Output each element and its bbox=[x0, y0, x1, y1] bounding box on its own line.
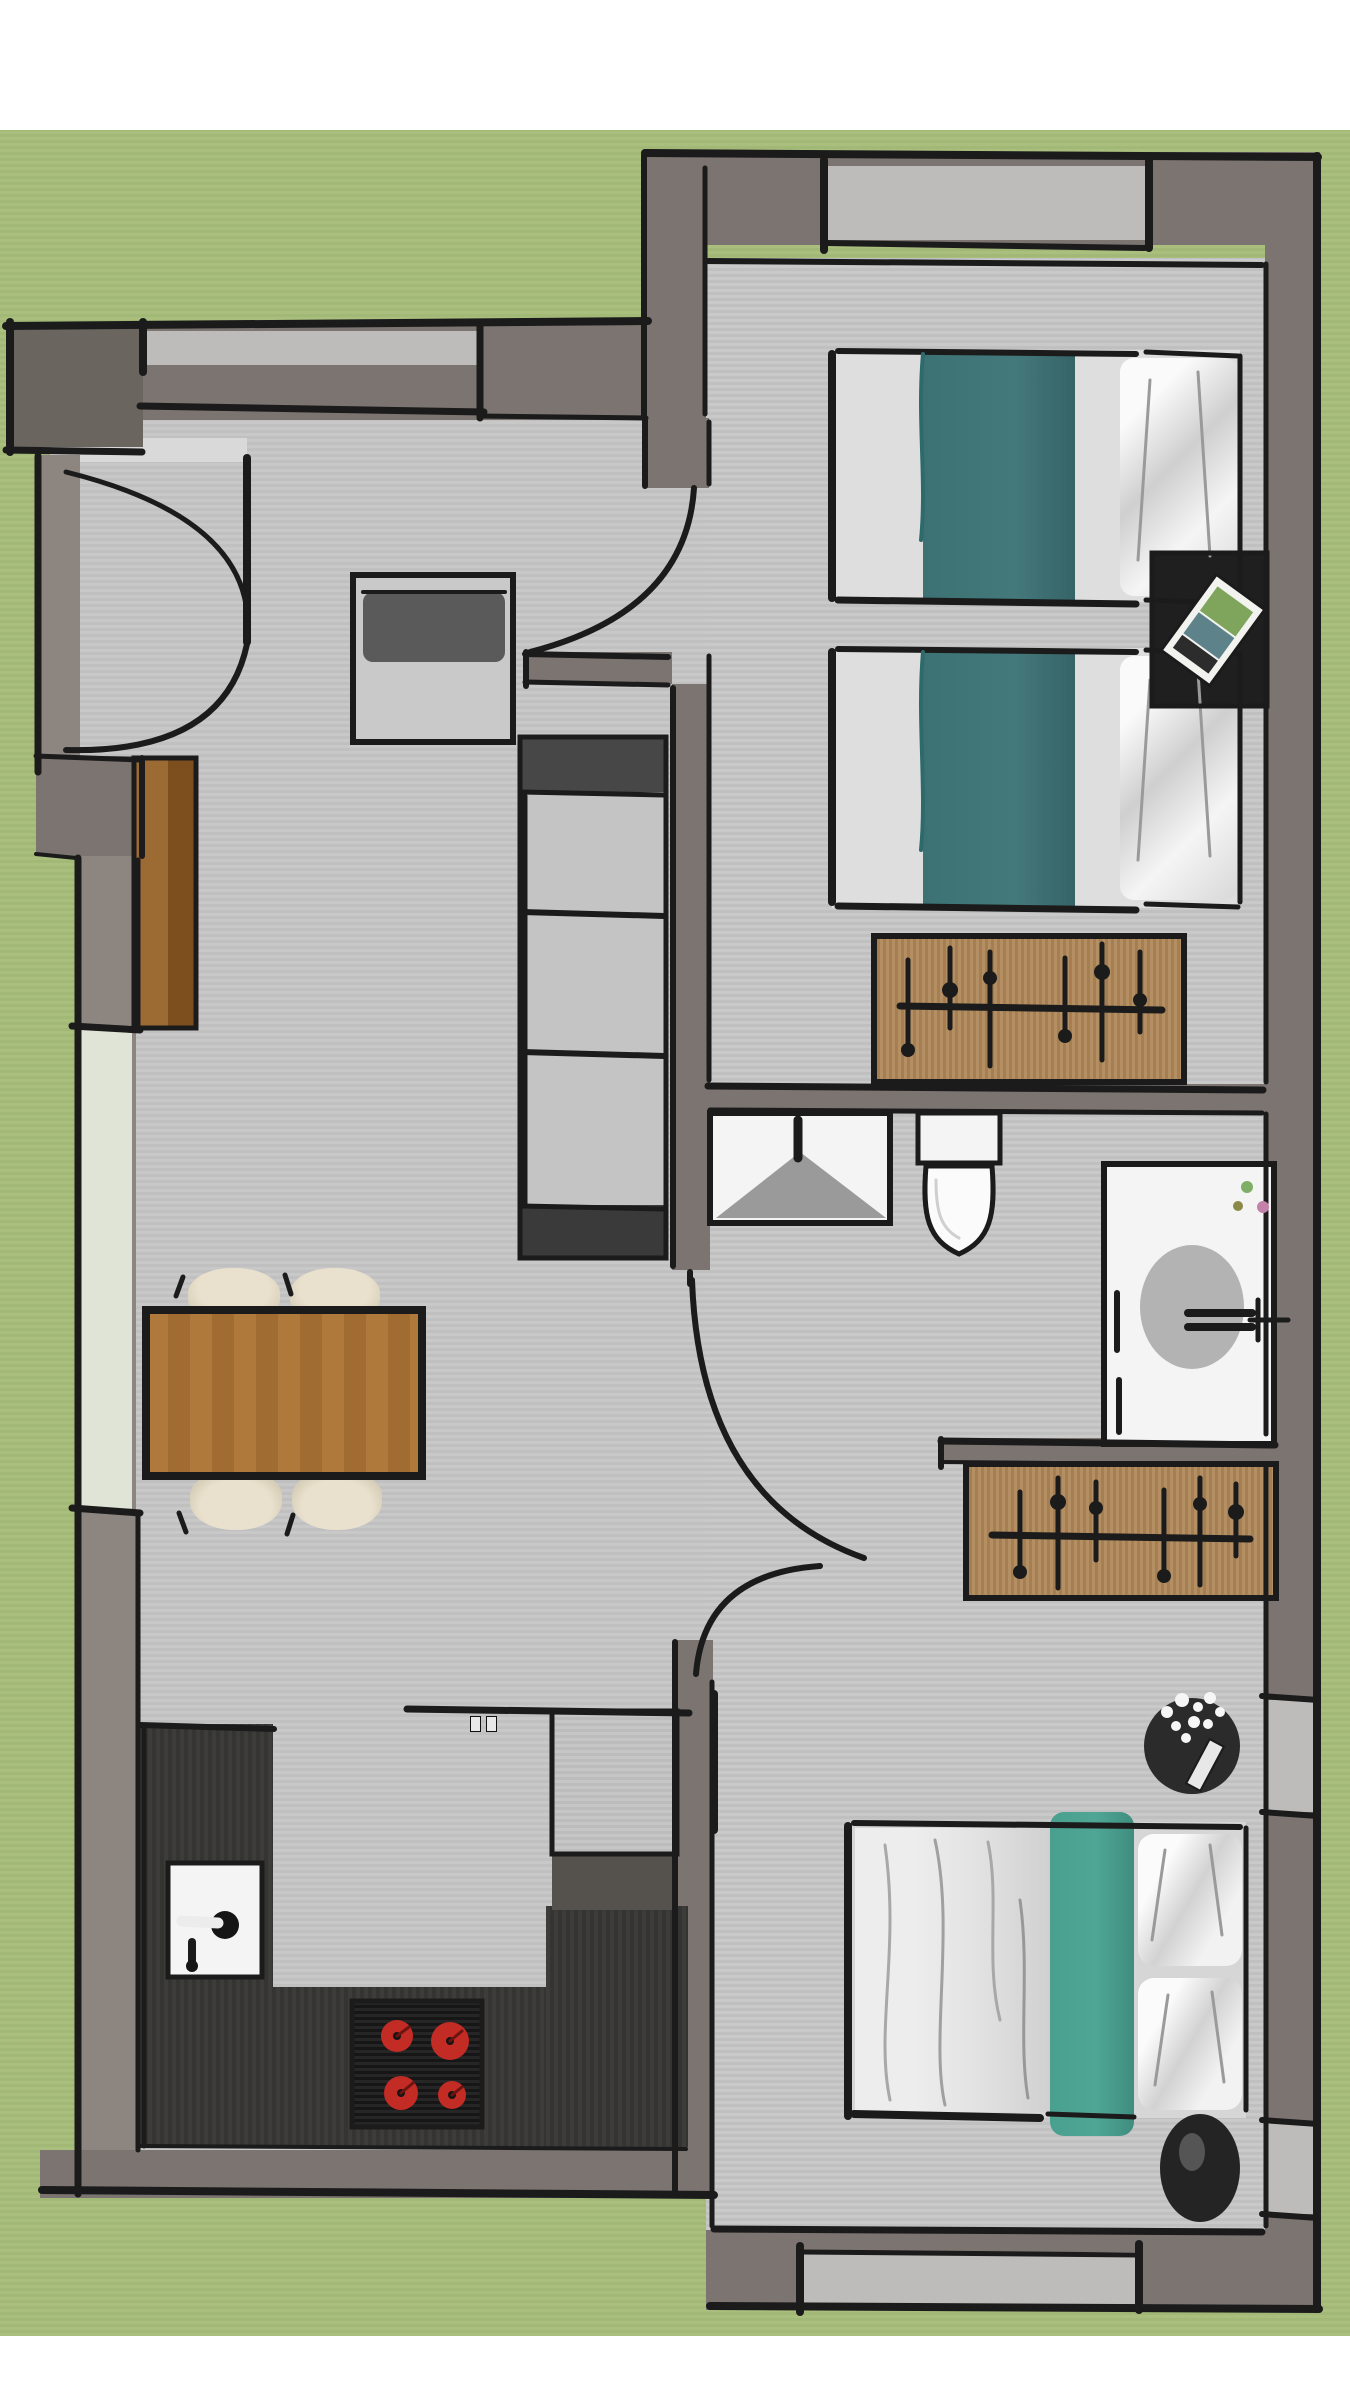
wardrobe-bedroom2 bbox=[966, 1463, 1277, 1600]
window-living-top bbox=[143, 331, 480, 365]
double-bed-pillow-2 bbox=[1138, 1978, 1242, 2110]
window-bedroom2-bottom bbox=[802, 2252, 1137, 2304]
counter-tick bbox=[486, 1716, 497, 1732]
kitchen-counter-right bbox=[546, 1906, 688, 2147]
plant-table-2 bbox=[1160, 2114, 1240, 2222]
kitchen-sink bbox=[168, 1862, 262, 1978]
bed1-teal-runner bbox=[923, 352, 1075, 600]
nightstand bbox=[1152, 552, 1267, 708]
floor-plan-canvas bbox=[0, 0, 1350, 2400]
toilet-tank bbox=[918, 1112, 1000, 1162]
window-living-left bbox=[80, 1030, 132, 1510]
window-right-upper bbox=[1268, 1700, 1316, 1812]
paper-margin-bottom bbox=[0, 2336, 1350, 2400]
wall-left-jog bbox=[36, 756, 140, 856]
paper-margin-top bbox=[0, 0, 1350, 130]
dining-chair bbox=[190, 1472, 282, 1530]
wall-bedroom1-bathroom bbox=[706, 1084, 1265, 1112]
plant-table-1 bbox=[1144, 1698, 1240, 1794]
dining-table bbox=[146, 1309, 422, 1477]
wardrobe-bedroom1 bbox=[874, 935, 1184, 1082]
wall-bedroom1-door-stub bbox=[643, 418, 709, 488]
double-bed-pillow-1 bbox=[1138, 1834, 1242, 1966]
sideboard bbox=[134, 757, 196, 1028]
refrigerator bbox=[552, 1710, 677, 1855]
wall-middle-upper bbox=[672, 684, 710, 1270]
wall-bottom-living bbox=[40, 2150, 710, 2198]
counter-tick bbox=[470, 1716, 481, 1732]
bed2-teal-runner bbox=[923, 650, 1075, 906]
double-bed-duvet bbox=[855, 1828, 1055, 2112]
cooktop bbox=[352, 2000, 482, 2128]
shelving-unit bbox=[520, 735, 666, 1260]
double-bed-teal-runner bbox=[1050, 1812, 1134, 2136]
refrigerator-shadow bbox=[552, 1855, 677, 1910]
shelving-top bbox=[520, 735, 666, 792]
bathtub bbox=[1102, 1163, 1276, 1446]
wall-left-upper bbox=[36, 455, 80, 770]
shelving-bottom bbox=[520, 1205, 666, 1260]
window-right-lower bbox=[1268, 2122, 1316, 2214]
window-bedroom1-top bbox=[825, 166, 1150, 240]
armchair-cushion bbox=[363, 592, 505, 662]
dining-chair bbox=[292, 1472, 382, 1530]
washbasin bbox=[710, 1113, 890, 1223]
wall-top-left-corner bbox=[8, 325, 143, 447]
wall-spur bbox=[525, 652, 672, 684]
